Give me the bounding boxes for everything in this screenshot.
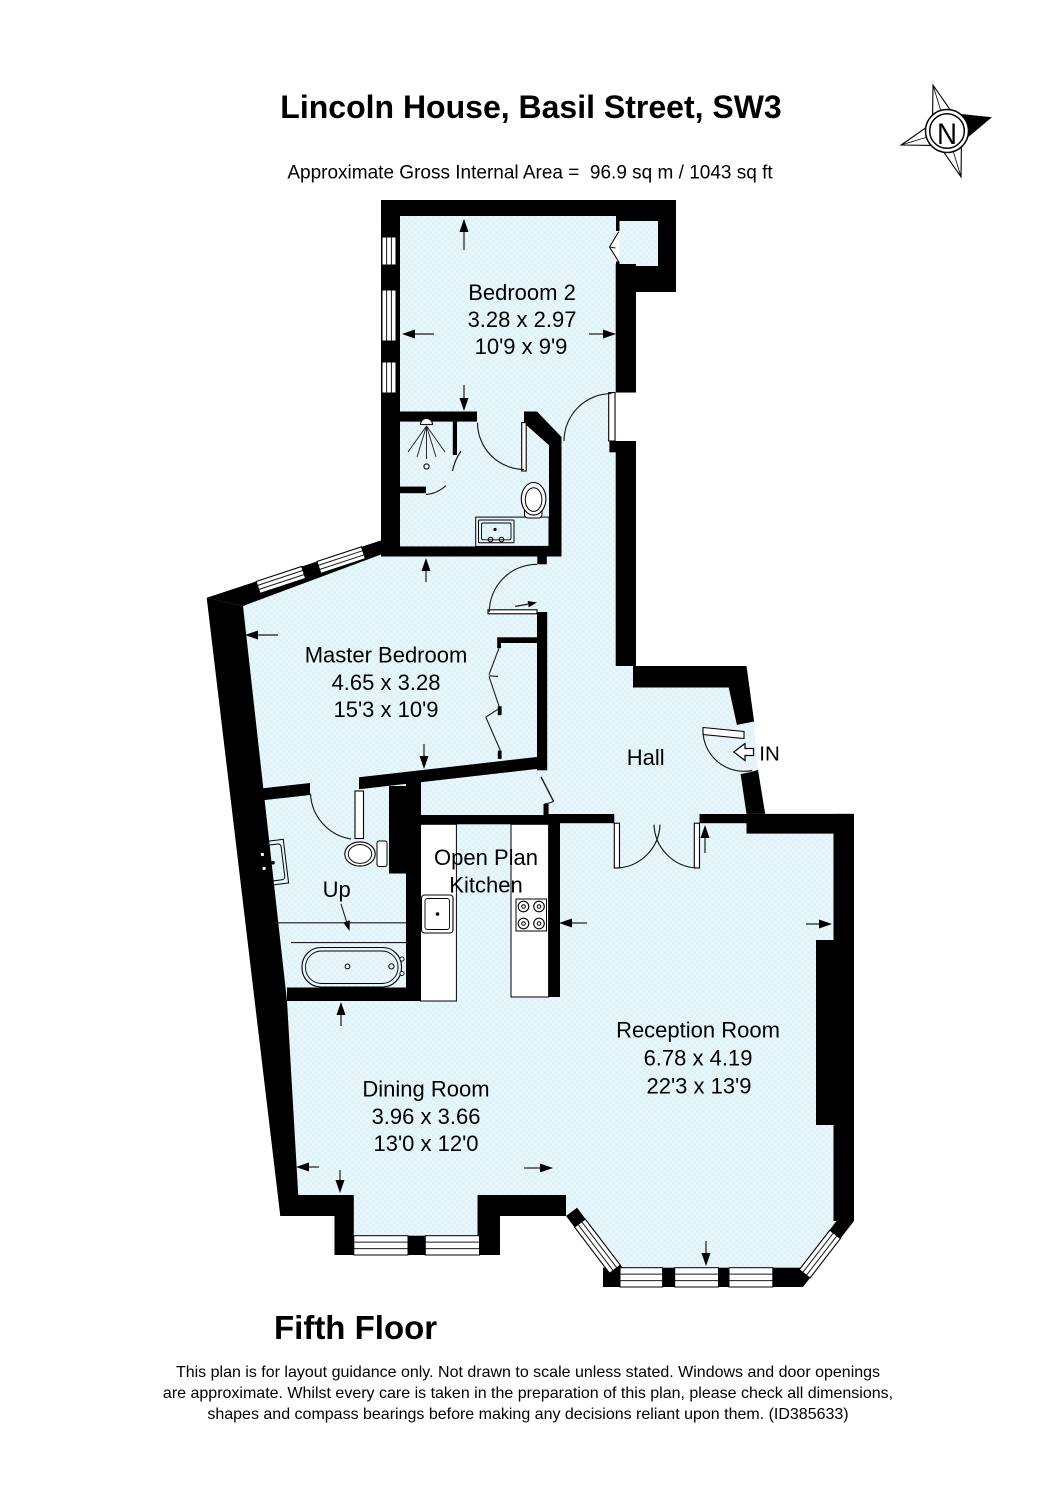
svg-text:Kitchen: Kitchen <box>449 873 522 898</box>
svg-text:3.96 x 3.66: 3.96 x 3.66 <box>372 1104 481 1129</box>
svg-text:Fifth Floor: Fifth Floor <box>274 1309 437 1346</box>
svg-text:6.78 x 4.19: 6.78 x 4.19 <box>644 1046 753 1071</box>
svg-text:shapes and compass bearings be: shapes and compass bearings before makin… <box>207 1406 848 1423</box>
svg-text:15'3 x 10'9: 15'3 x 10'9 <box>333 697 438 722</box>
svg-text:Approximate Gross Internal Are: Approximate Gross Internal Area = 96.9 s… <box>287 163 773 184</box>
svg-text:10'9 x 9'9: 10'9 x 9'9 <box>475 334 568 359</box>
svg-text:IN: IN <box>759 743 780 766</box>
svg-text:Hall: Hall <box>627 745 665 770</box>
svg-text:22'3 x 13'9: 22'3 x 13'9 <box>646 1074 751 1099</box>
svg-text:This plan is for layout guidan: This plan is for layout guidance only. N… <box>176 1364 880 1381</box>
svg-text:Open Plan: Open Plan <box>434 845 538 870</box>
svg-text:Dining Room: Dining Room <box>362 1077 489 1102</box>
svg-text:Master Bedroom: Master Bedroom <box>305 643 468 668</box>
svg-text:13'0 x 12'0: 13'0 x 12'0 <box>373 1131 478 1156</box>
svg-text:are approximate. Whilst every: are approximate. Whilst every care is ta… <box>163 1385 893 1402</box>
svg-text:Bedroom 2: Bedroom 2 <box>468 280 576 305</box>
svg-text:Lincoln House, Basil Street, S: Lincoln House, Basil Street, SW3 <box>280 89 781 125</box>
svg-text:3.28 x 2.97: 3.28 x 2.97 <box>468 307 577 332</box>
svg-text:N: N <box>937 118 957 151</box>
svg-text:Up: Up <box>323 877 351 902</box>
svg-text:4.65 x 3.28: 4.65 x 3.28 <box>332 670 441 695</box>
svg-text:Reception Room: Reception Room <box>616 1018 780 1043</box>
